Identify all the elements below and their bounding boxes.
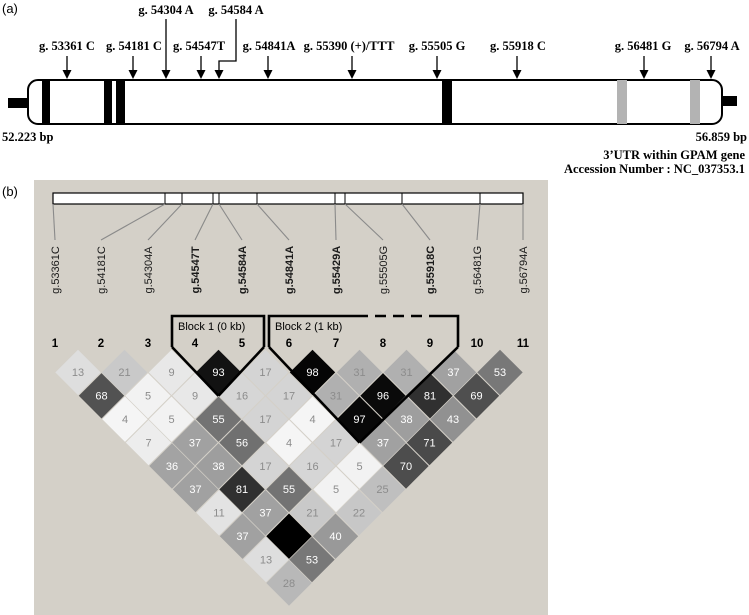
ld-value: 17 xyxy=(330,437,342,449)
ld-value: 17 xyxy=(259,461,271,473)
ld-value: 5 xyxy=(356,461,362,473)
column-number: 9 xyxy=(427,338,433,350)
snp-label: g.55505G xyxy=(378,246,390,294)
column-number: 5 xyxy=(239,338,246,350)
ld-value: 43 xyxy=(447,414,459,426)
marker-label: g. 54304 A xyxy=(138,3,193,17)
column-number: 3 xyxy=(145,338,151,350)
ld-value: 37 xyxy=(189,484,201,496)
marker-label: g. 55390 (+)/TTT xyxy=(304,39,395,53)
ld-value: 11 xyxy=(213,508,224,520)
marker-arrowhead xyxy=(707,70,716,79)
ld-value: 37 xyxy=(259,508,271,520)
figure-container: (a) g. 53361 Cg. 54181 Cg. 54304 Ag. 545… xyxy=(0,0,749,615)
block-label: Block 1 (0 kb) xyxy=(178,321,245,333)
ld-value: 13 xyxy=(72,367,84,379)
ld-value: 97 xyxy=(353,414,365,426)
ld-value: 31 xyxy=(330,391,342,403)
ld-value: 5 xyxy=(145,391,151,403)
snp-label: g.54181C xyxy=(96,246,108,294)
marker-arrowhead xyxy=(264,70,273,79)
ld-value: 31 xyxy=(400,367,412,379)
gene-bar-left-stub xyxy=(8,98,29,108)
ld-value: 13 xyxy=(260,554,272,566)
ld-value: 25 xyxy=(376,484,388,496)
ld-value: 71 xyxy=(423,437,435,449)
ld-value: 53 xyxy=(306,554,318,566)
ld-value: 70 xyxy=(400,461,412,473)
black-variant-band xyxy=(116,80,125,124)
column-number: 6 xyxy=(286,338,292,350)
marker-label: g. 54584 A xyxy=(208,3,263,17)
ld-value: 37 xyxy=(377,437,389,449)
ld-value: 5 xyxy=(168,414,174,426)
accession-caption: Accession Number : NC_037353.1 xyxy=(564,162,745,176)
column-number: 11 xyxy=(517,338,530,350)
marker-label: g. 54841A xyxy=(243,39,296,53)
column-number: 1 xyxy=(52,338,59,350)
ld-value: 16 xyxy=(306,461,318,473)
ld-value: 56 xyxy=(236,437,248,449)
marker-arrowhead xyxy=(63,70,72,79)
snp-label: g.55429A xyxy=(331,246,343,294)
ld-value: 9 xyxy=(192,391,198,403)
ld-value: 96 xyxy=(377,391,389,403)
snp-label: g.56481G xyxy=(472,246,484,294)
ld-value: 53 xyxy=(494,367,506,379)
ld-value: 17 xyxy=(283,391,295,403)
snp-label: g.54304A xyxy=(143,246,155,294)
ld-value: 38 xyxy=(212,461,224,473)
snp-label: g.55918C xyxy=(425,246,437,294)
ld-value: 98 xyxy=(306,367,318,379)
ld-value: 69 xyxy=(470,391,482,403)
block-label: Block 2 (1 kb) xyxy=(275,321,342,333)
ld-value: 68 xyxy=(95,391,107,403)
ld-value: 5 xyxy=(333,484,339,496)
ld-value: 81 xyxy=(236,484,248,496)
marker-arrowhead xyxy=(215,70,224,79)
start-bp-label: 52.223 bp xyxy=(2,130,53,144)
ld-value: 31 xyxy=(353,367,365,379)
ld-value: 7 xyxy=(145,437,151,449)
ld-value: 9 xyxy=(168,367,174,379)
marker-label: g. 53361 C xyxy=(39,39,95,53)
marker-label: g. 55918 C xyxy=(490,39,546,53)
column-number: 7 xyxy=(333,338,339,350)
ld-value: 38 xyxy=(400,414,412,426)
snp-label: g.56794A xyxy=(518,246,530,294)
gray-variant-band xyxy=(690,80,700,124)
marker-label: g. 56794 A xyxy=(684,39,739,53)
black-variant-band xyxy=(42,80,50,124)
ld-value: 4 xyxy=(309,414,315,426)
variant-markers: g. 53361 Cg. 54181 Cg. 54304 Ag. 54547Tg… xyxy=(39,3,740,79)
marker-arrowhead xyxy=(348,70,357,79)
marker-arrowhead xyxy=(197,70,206,79)
ld-value: 40 xyxy=(329,531,341,543)
panel-a-gene-map: (a) g. 53361 Cg. 54181 Cg. 54304 Ag. 545… xyxy=(0,0,749,178)
column-number: 10 xyxy=(471,338,484,350)
black-variant-band xyxy=(442,80,452,124)
marker-arrowhead xyxy=(162,70,171,79)
column-number: 8 xyxy=(380,338,387,350)
ld-value: 37 xyxy=(447,367,459,379)
panel-a-tag: (a) xyxy=(2,1,18,16)
black-variant-band xyxy=(104,80,112,124)
ld-value: 55 xyxy=(283,484,295,496)
ld-value: 17 xyxy=(259,414,271,426)
ld-value: 37 xyxy=(236,531,248,543)
gray-variant-band xyxy=(617,80,627,124)
gene-bar-right-stub xyxy=(721,96,737,106)
ld-value: 21 xyxy=(306,508,318,520)
ld-value: 16 xyxy=(236,391,248,403)
marker-arrowhead xyxy=(129,70,138,79)
panel-b-tag: (b) xyxy=(2,184,18,199)
panel-b-ld-plot: (b) g.53361Cg.54181Cg.54304Ag.54547Tg.54… xyxy=(0,180,749,615)
ld-value: 28 xyxy=(283,578,295,590)
snp-label: g.54547T xyxy=(190,246,202,293)
marker-arrowhead xyxy=(640,70,649,79)
marker-label: g. 54181 C xyxy=(106,39,162,53)
utr-caption: 3’UTR within GPAM gene xyxy=(603,148,745,162)
ld-value: 37 xyxy=(189,437,201,449)
ld-value: 93 xyxy=(212,367,224,379)
ld-value: 36 xyxy=(166,461,178,473)
ld-value: 55 xyxy=(212,414,224,426)
marker-label: g. 55505 G xyxy=(409,39,466,53)
marker-label: g. 56481 G xyxy=(615,39,672,53)
marker-arrowhead xyxy=(433,70,442,79)
column-number: 2 xyxy=(98,338,104,350)
ld-value: 4 xyxy=(122,414,128,426)
ld-value: 81 xyxy=(424,391,436,403)
ld-value: 4 xyxy=(286,437,292,449)
end-bp-label: 56.859 bp xyxy=(696,130,747,144)
ld-value: 22 xyxy=(353,508,365,520)
marker-arrowhead xyxy=(513,70,522,79)
ld-value: 17 xyxy=(259,367,271,379)
snp-label: g.53361C xyxy=(50,246,62,294)
locus-bar xyxy=(53,193,523,204)
snp-label: g.54841A xyxy=(284,246,296,294)
column-number: 4 xyxy=(192,338,199,350)
marker-label: g. 54547T xyxy=(173,39,226,53)
ld-value: 21 xyxy=(118,367,130,379)
snp-label: g.54584A xyxy=(237,246,249,294)
